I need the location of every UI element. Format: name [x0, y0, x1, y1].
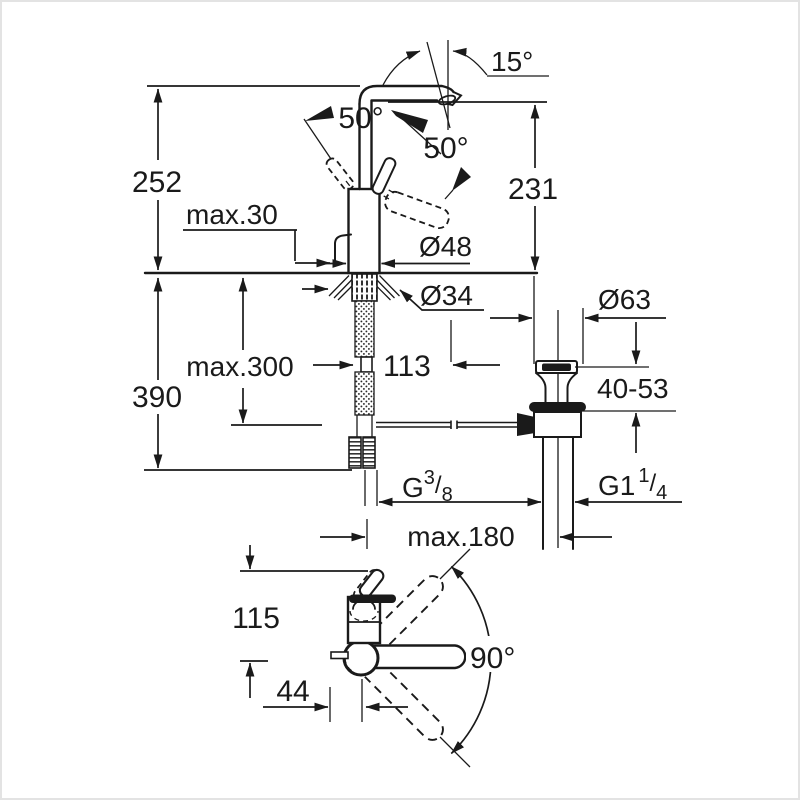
threaded-shank — [352, 274, 377, 301]
lever-bar-top-view — [349, 595, 396, 604]
side-view-dimensions: 15° 50° 50° 252 231 max.30 Ø48 — [132, 40, 682, 552]
lever-axis-left — [304, 119, 331, 159]
drain-seal-ring — [529, 402, 586, 412]
label-shank-diameter: Ø34 — [420, 280, 473, 311]
label-drain-diameter: Ø63 — [598, 284, 651, 315]
label-hose-length: max.300 — [186, 351, 293, 382]
label-deck-thickness: max.30 — [186, 199, 278, 230]
seal-wing-left — [329, 276, 355, 301]
label-lever-swing-front: 50° — [423, 132, 468, 165]
drain-body — [534, 412, 581, 437]
label-spout-height: 231 — [508, 173, 558, 206]
lever-dashed-left — [325, 156, 356, 191]
label-drain-thread: G11/4 — [598, 465, 667, 504]
spout-dashed-down — [365, 662, 447, 744]
hose-end-fitting-left — [349, 437, 361, 468]
label-spout-reach: 113 — [383, 350, 431, 383]
pop-rod-top-view — [331, 652, 348, 659]
wedge-arrow-50-left — [305, 106, 334, 121]
label-clamp-range: 40-53 — [597, 373, 669, 404]
top-view: 115 44 90° — [232, 545, 528, 767]
label-spout-tilt: 15° — [491, 46, 533, 77]
technical-drawing-canvas: 15° 50° 50° 252 231 max.30 Ø48 — [0, 0, 800, 800]
body-top-view — [348, 597, 380, 643]
label-supply-thread: G3/8 — [402, 467, 453, 506]
faucet-body — [349, 189, 380, 273]
label-swivel-angle: 90° — [470, 642, 515, 675]
faucet-dimension-diagram: 15° 50° 50° 252 231 max.30 Ø48 — [0, 0, 800, 800]
label-body-diameter: Ø48 — [419, 231, 472, 262]
supply-hose-lower — [355, 372, 374, 415]
drain-plug-top — [542, 364, 571, 372]
label-supply-drop: 390 — [132, 381, 182, 414]
wedge-arrow-50-front — [452, 167, 471, 191]
label-rod-reach: max.180 — [407, 521, 514, 552]
hose-end-fitting-right — [363, 437, 375, 468]
angle-arc-15-right — [453, 51, 487, 75]
label-total-height: 252 — [132, 166, 182, 199]
wedge-arrow-50-right — [391, 110, 428, 133]
label-rod-offset: 44 — [276, 675, 309, 708]
angle-arc-15-left — [383, 51, 420, 85]
ext-lines-44 — [330, 679, 362, 722]
label-lever-swing-side: 50° — [338, 102, 383, 135]
hose-connector — [361, 357, 372, 372]
rod-port — [517, 413, 535, 436]
swivel-joint — [344, 641, 378, 675]
pop-up-rod — [376, 421, 517, 430]
label-base-depth: 115 — [232, 602, 280, 635]
supply-hose-upper — [355, 301, 374, 357]
ext-lines-g38 — [365, 470, 377, 506]
drain-flange — [536, 373, 577, 402]
max30-leader — [183, 230, 297, 261]
hose-pipes — [357, 415, 372, 437]
wedge-50-front-leader — [445, 190, 453, 199]
lever-dashed-front — [383, 189, 452, 230]
lever-solid — [371, 156, 397, 195]
